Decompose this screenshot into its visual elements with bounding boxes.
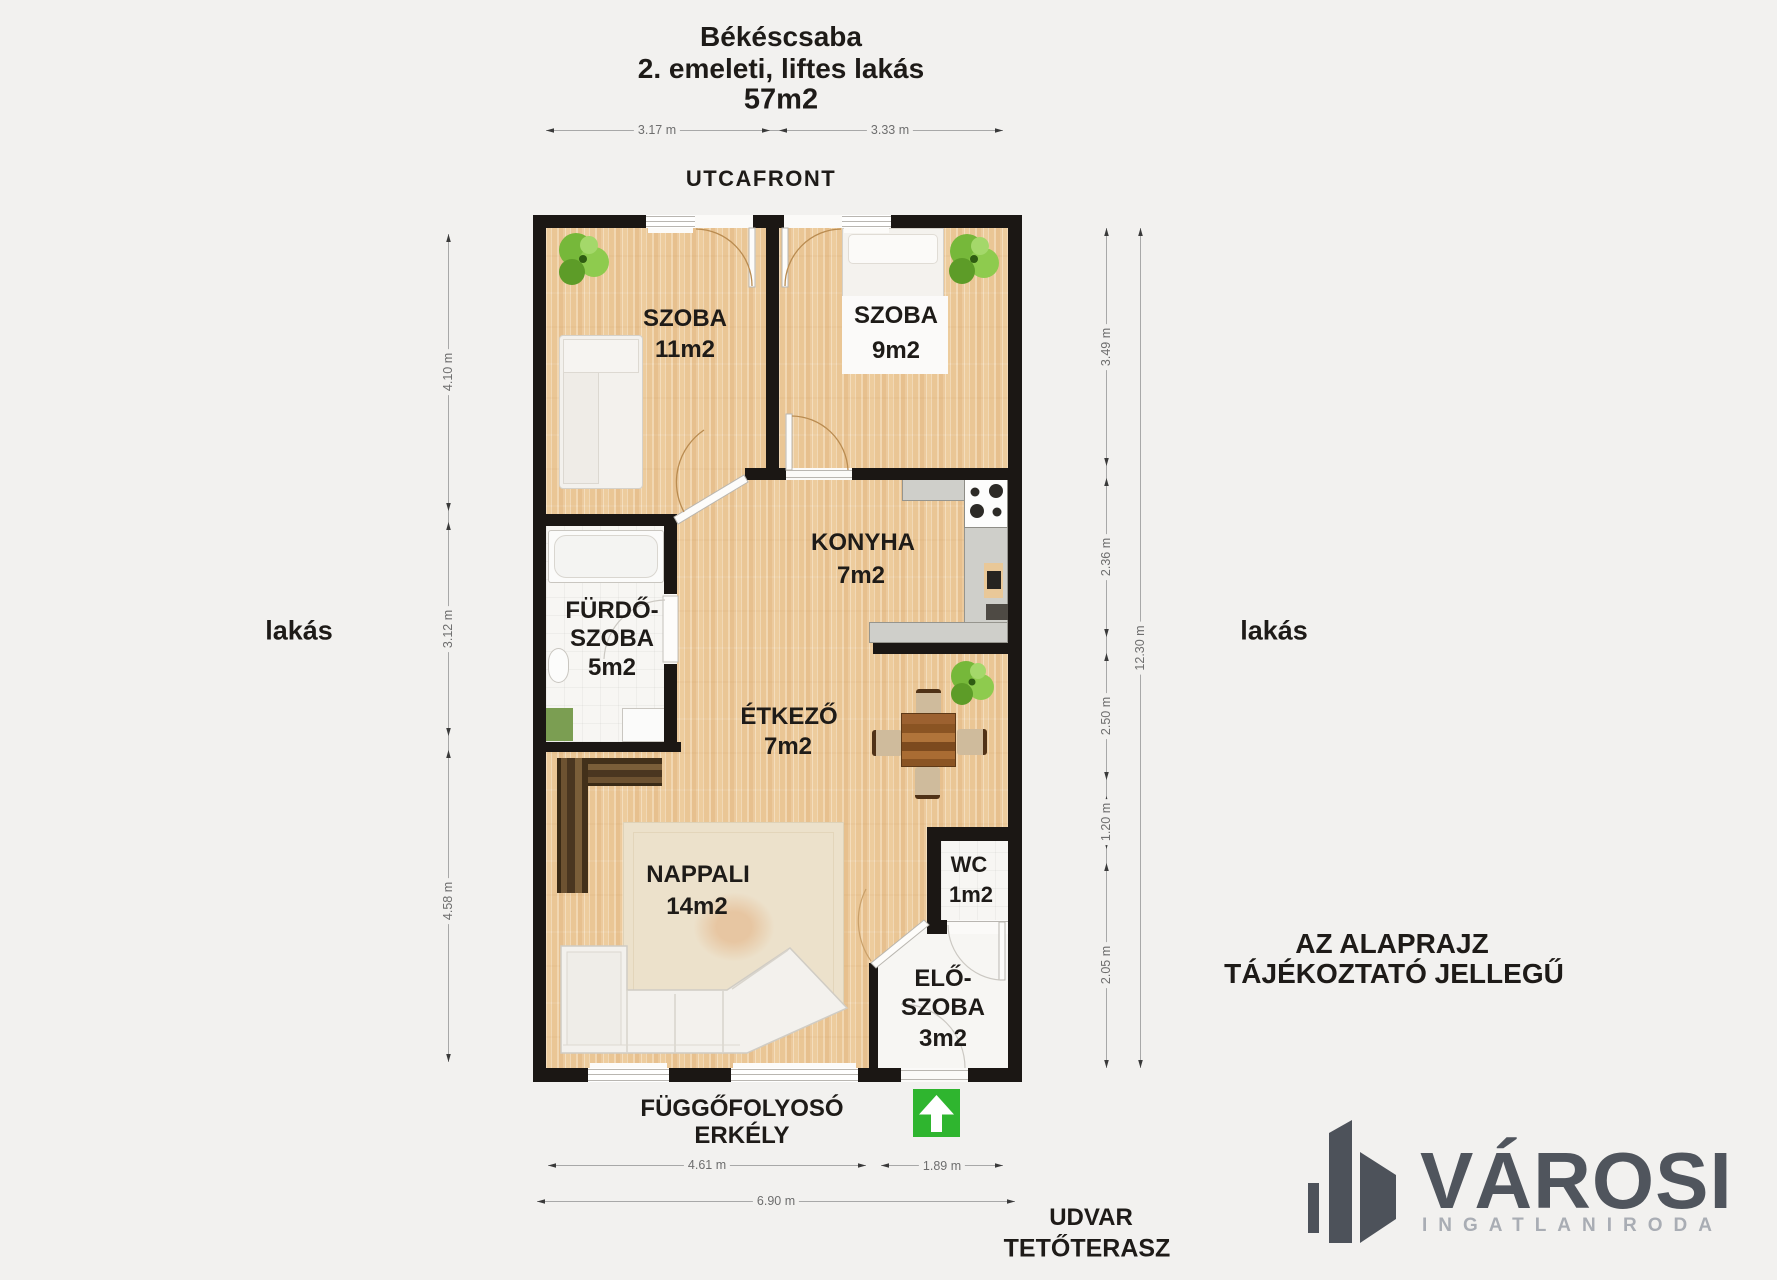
svg-text:INGATLANIRODA: INGATLANIRODA [1422, 1215, 1723, 1236]
svg-text:VÁROSI: VÁROSI [1420, 1136, 1733, 1225]
